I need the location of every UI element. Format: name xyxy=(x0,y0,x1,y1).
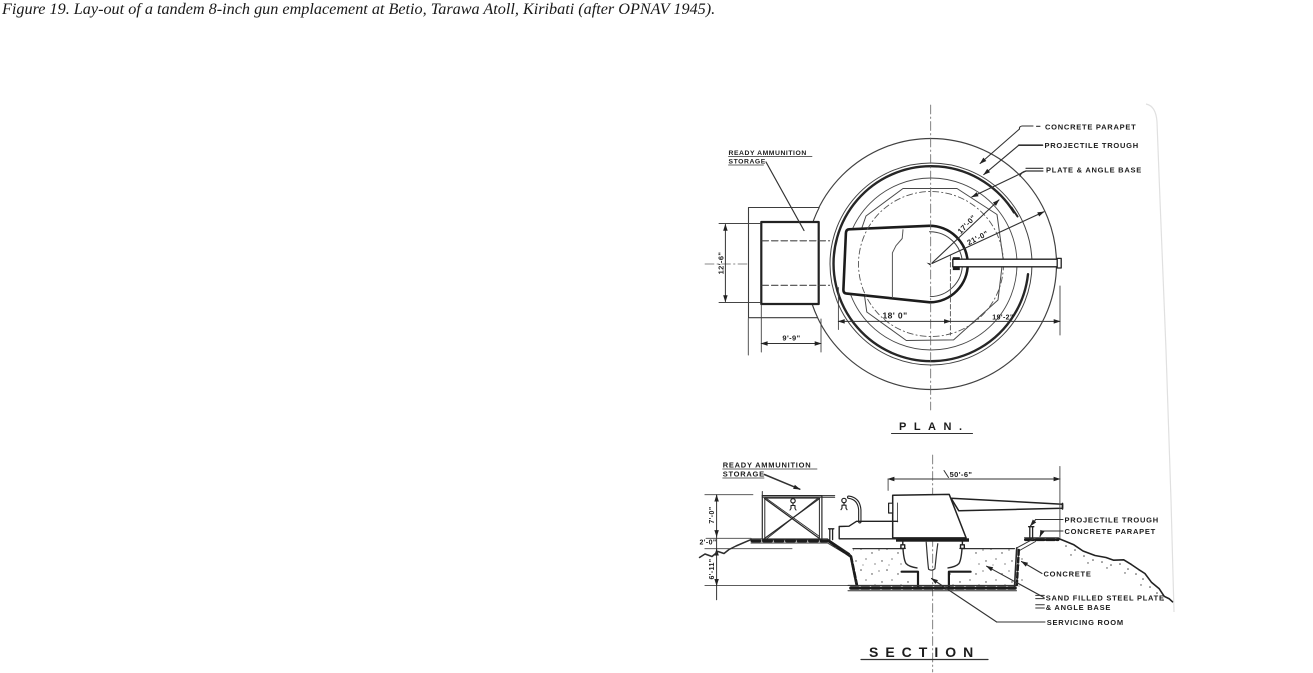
svg-text:CONCRETE PARAPET: CONCRETE PARAPET xyxy=(1065,527,1156,536)
svg-text:SERVICING ROOM: SERVICING ROOM xyxy=(1047,618,1124,627)
svg-text:SAND FILLED STEEL PLATE: SAND FILLED STEEL PLATE xyxy=(1046,594,1165,603)
svg-text:7'-0": 7'-0" xyxy=(709,506,716,523)
svg-text:READY AMMUNITION: READY AMMUNITION xyxy=(729,150,807,157)
svg-text:PLAN.: PLAN. xyxy=(899,421,970,433)
svg-text:STORAGE: STORAGE xyxy=(729,159,766,166)
svg-text:PROJECTILE TROUGH: PROJECTILE TROUGH xyxy=(1045,141,1139,150)
svg-text:SECTION: SECTION xyxy=(869,644,980,660)
svg-text:2'-0": 2'-0" xyxy=(700,540,717,547)
svg-text:& ANGLE BASE: & ANGLE BASE xyxy=(1046,603,1111,612)
svg-text:21'-0": 21'-0" xyxy=(966,229,990,247)
svg-text:CONCRETE: CONCRETE xyxy=(1044,570,1092,579)
svg-text:PROJECTILE TROUGH: PROJECTILE TROUGH xyxy=(1065,516,1159,525)
svg-text:6'-11": 6'-11" xyxy=(709,558,716,579)
svg-text:12'-6": 12'-6" xyxy=(717,252,726,275)
svg-text:18' 0": 18' 0" xyxy=(883,311,908,321)
svg-text:50'-6": 50'-6" xyxy=(950,470,973,479)
svg-text:19'-2": 19'-2" xyxy=(992,315,1013,322)
svg-text:PLATE & ANGLE BASE: PLATE & ANGLE BASE xyxy=(1046,166,1142,175)
svg-text:CONCRETE PARAPET: CONCRETE PARAPET xyxy=(1045,123,1136,132)
svg-text:17'-0": 17'-0" xyxy=(956,213,978,236)
svg-text:STORAGE: STORAGE xyxy=(723,470,765,479)
svg-text:READY AMMUNITION: READY AMMUNITION xyxy=(723,461,812,470)
svg-text:9'-9": 9'-9" xyxy=(782,334,800,343)
